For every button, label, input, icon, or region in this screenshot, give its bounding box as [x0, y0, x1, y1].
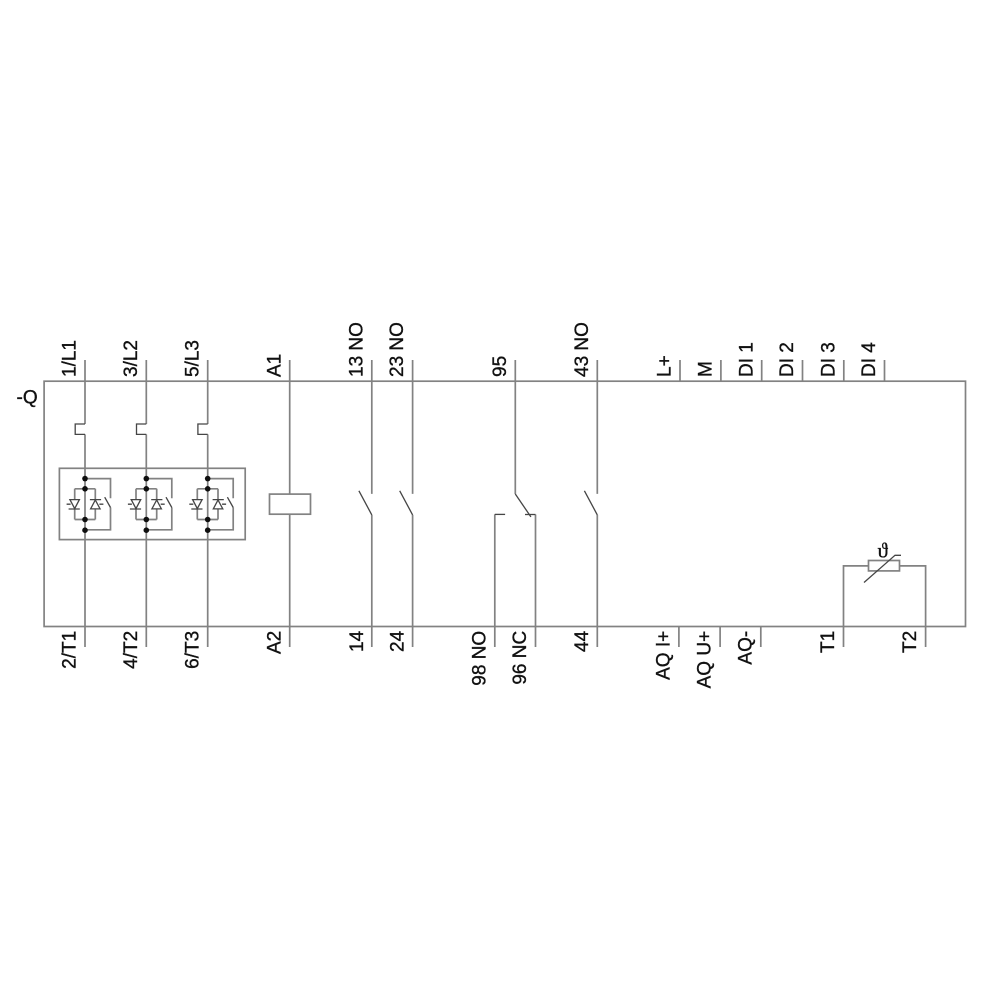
- svg-text:T1: T1: [818, 631, 839, 653]
- svg-text:14: 14: [347, 630, 368, 652]
- svg-text:23 NO: 23 NO: [387, 322, 408, 377]
- svg-text:43 NO: 43 NO: [572, 322, 593, 377]
- svg-text:A1: A1: [264, 354, 285, 377]
- svg-text:AQ U+: AQ U+: [695, 631, 716, 689]
- svg-text:AQ I+: AQ I+: [654, 631, 675, 680]
- svg-text:L+: L+: [655, 355, 676, 377]
- svg-text:A2: A2: [264, 631, 285, 654]
- svg-text:95: 95: [490, 356, 511, 377]
- svg-text:DI 4: DI 4: [859, 342, 880, 377]
- svg-text:4/T2: 4/T2: [121, 631, 142, 669]
- svg-text:5/L3: 5/L3: [182, 340, 203, 377]
- svg-text:3/L2: 3/L2: [121, 340, 142, 377]
- svg-text:6/T3: 6/T3: [182, 631, 203, 669]
- svg-text:2/T1: 2/T1: [60, 631, 81, 669]
- svg-text:DI 1: DI 1: [736, 342, 757, 377]
- svg-text:13 NO: 13 NO: [346, 322, 367, 377]
- svg-text:-Q: -Q: [17, 388, 38, 409]
- svg-text:44: 44: [572, 630, 593, 652]
- svg-text:96 NC: 96 NC: [510, 631, 531, 685]
- svg-text:DI 3: DI 3: [818, 342, 839, 377]
- svg-text:AQ-: AQ-: [735, 631, 756, 665]
- svg-text:ϑ: ϑ: [878, 539, 889, 563]
- svg-text:M: M: [696, 361, 717, 377]
- svg-text:DI 2: DI 2: [777, 342, 798, 377]
- svg-text:24: 24: [387, 630, 408, 652]
- svg-text:T2: T2: [900, 631, 921, 653]
- svg-text:1/L1: 1/L1: [60, 340, 81, 377]
- svg-text:98 NO: 98 NO: [469, 631, 490, 686]
